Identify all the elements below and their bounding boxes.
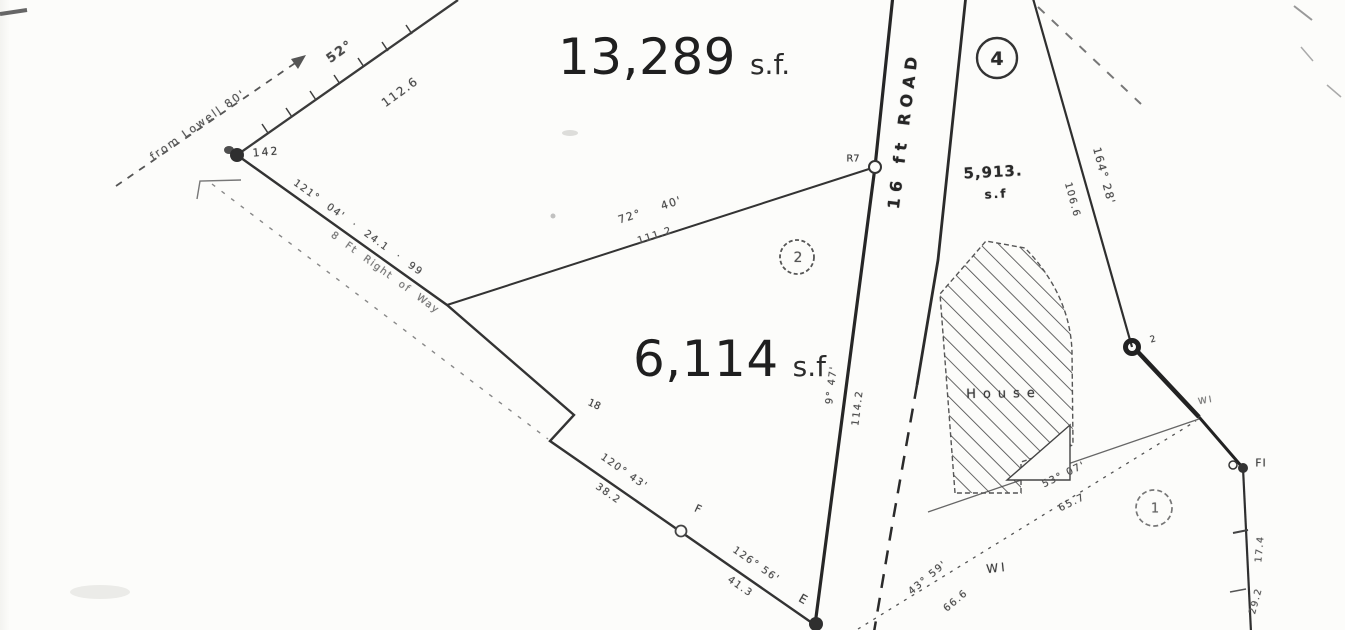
- tick-marks-52-line: [262, 25, 412, 133]
- point-label-142: 142: [252, 144, 280, 159]
- scan-speck: [551, 214, 556, 219]
- house-label: House: [966, 386, 1042, 402]
- survey-point-r7: [869, 161, 881, 173]
- plat-canvas: 13,289 s.f. 6,114 s.f 5,913. s.f 16 ft R…: [0, 0, 1345, 630]
- lot-number-1: 1: [1151, 502, 1159, 517]
- boundary-line-52: [237, 0, 458, 155]
- plat-linework: [0, 0, 1345, 630]
- parcel-boundary-line: [237, 155, 815, 625]
- scan-edge-mark: [0, 10, 27, 14]
- area-unit: s.f: [793, 350, 826, 383]
- survey-point-e: [809, 617, 823, 630]
- point-label-wi-a: WI: [986, 560, 1009, 576]
- area-label-lot2: 6,114 s.f: [633, 330, 826, 388]
- road-edge-left: [815, 0, 893, 625]
- survey-point-142-blob: [224, 146, 234, 154]
- area-value: 6,114: [633, 330, 779, 388]
- scan-mark: [1294, 6, 1312, 20]
- survey-point-fi: [1238, 463, 1248, 473]
- point-label-r7: R7: [846, 154, 859, 165]
- scan-smudge: [70, 585, 130, 599]
- tick-mark: [1230, 589, 1246, 592]
- lot-number-4: 4: [990, 48, 1003, 70]
- boundary-segment-thick: [1138, 352, 1199, 417]
- right-of-way-dashed-line: [212, 184, 548, 439]
- area-label-top-lot: 13,289 s.f.: [558, 28, 790, 86]
- survey-point-f: [676, 526, 687, 537]
- ann-dist-17-4: 17.4: [1253, 535, 1266, 563]
- area-value: 13,289: [558, 28, 736, 86]
- scan-mark: [1327, 85, 1341, 97]
- survey-point-fi-ring: [1229, 461, 1237, 469]
- arrowhead: [291, 55, 306, 69]
- scan-mark: [1301, 47, 1313, 61]
- area-unit: s.f.: [750, 48, 790, 81]
- boundary-segment: [1199, 417, 1243, 468]
- lot-number-2: 2: [794, 250, 803, 266]
- scan-smudge: [562, 130, 578, 136]
- area-label-lot4-value: 5,913.: [963, 161, 1023, 182]
- dashed-line-top-right: [1038, 7, 1141, 104]
- area-label-lot4-unit: s.f: [984, 186, 1008, 201]
- point-label-fi: FI: [1255, 457, 1267, 470]
- right-of-way-bracket: [197, 180, 241, 199]
